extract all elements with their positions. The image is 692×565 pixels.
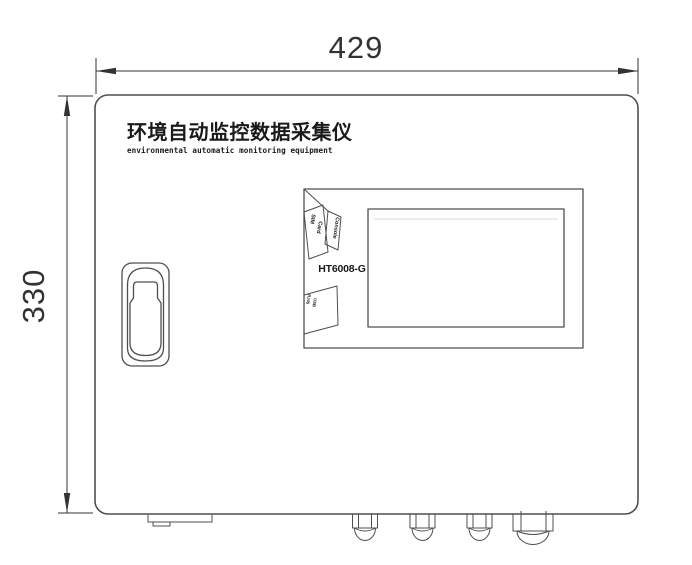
arrowhead-right-icon [618, 68, 638, 74]
equipment-front-view-drawing: 429 330 环境自动监控数据采集仪 environmental automa… [0, 0, 692, 565]
height-dimension-value: 330 [16, 269, 51, 324]
arrowhead-down-icon [64, 493, 70, 513]
mounting-tab [148, 515, 212, 526]
width-dimension-value: 429 [329, 30, 384, 65]
gland-nut [467, 514, 492, 528]
height-dimension: 330 [16, 96, 93, 513]
io-slot-label-line2: USB [311, 298, 317, 308]
enclosure-outline [95, 95, 638, 514]
io-slot-label-line1: RJ45 [305, 294, 312, 305]
display-screen [368, 209, 564, 327]
width-dimension: 429 [96, 30, 638, 94]
cable-gland [410, 514, 435, 541]
gland-nut [353, 514, 378, 528]
screen-bezel [368, 209, 564, 327]
gland-nut [513, 514, 553, 531]
model-number-label: HT6008-G [318, 263, 365, 275]
arrowhead-up-icon [64, 96, 70, 116]
device-title-cn: 环境自动监控数据采集仪 [127, 120, 353, 144]
console-slot-label: Console [331, 217, 340, 239]
sim-slot-label-line2: Card [315, 221, 323, 234]
cable-gland [353, 514, 378, 541]
cable-gland [467, 514, 492, 541]
sim-slot-label-line1: SIM [308, 214, 316, 225]
gland-nut [410, 514, 435, 528]
technical-drawing-page: 429 330 环境自动监控数据采集仪 environmental automa… [0, 0, 692, 565]
cable-gland-large [513, 511, 553, 545]
handle-grip [130, 282, 161, 356]
arrowhead-left-icon [96, 68, 116, 74]
sim-card-slot: SIM Card [304, 205, 328, 259]
io-port-slot: RJ45 USB [304, 286, 338, 334]
handle-bezel [122, 263, 169, 366]
mounting-tab-outer [148, 515, 212, 522]
panel-fold-line [304, 189, 329, 212]
gland-lip [517, 531, 549, 535]
device-title-en: environmental automatic monitoring equip… [127, 146, 333, 155]
door-handle [122, 263, 169, 366]
mounting-tab-inner [153, 522, 170, 526]
